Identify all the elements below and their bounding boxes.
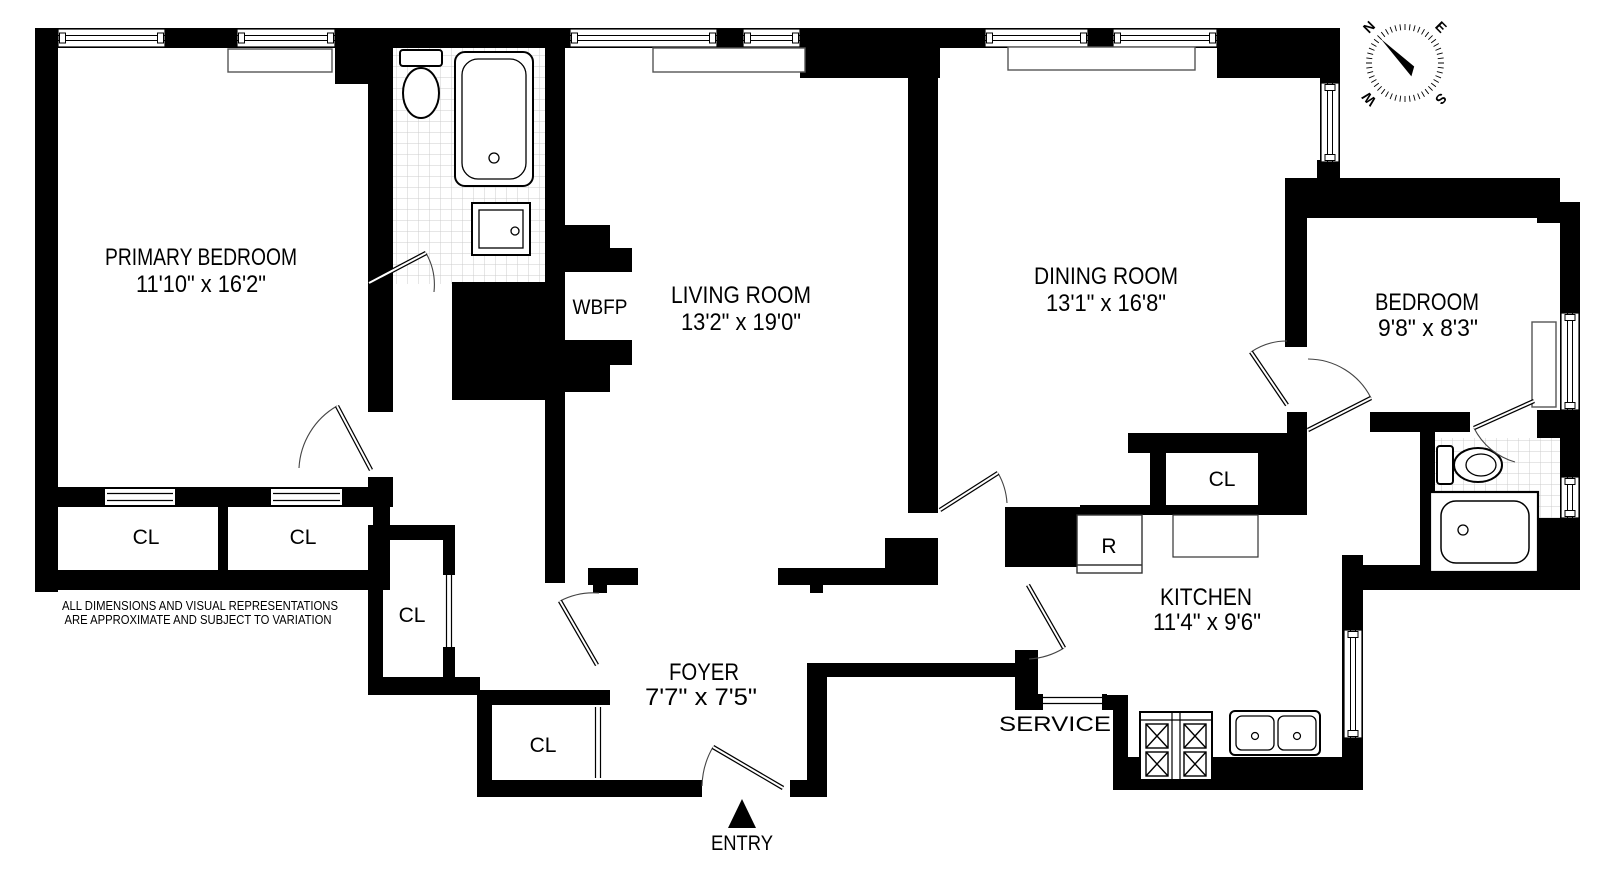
radiator-icon [1008,47,1195,70]
counter [1173,515,1258,557]
room-dims-kitchen: 11'4" x 9'6" [1153,609,1261,636]
radiator-icon [228,49,332,72]
closet-label: CL [399,604,426,627]
wbfp-label: WBFP [573,296,628,319]
radiator-icon [1532,322,1556,407]
closet-door-icon [1102,694,1107,710]
sink-icon [472,203,530,255]
window-icon [570,29,717,47]
room-label-bedroom: BEDROOM [1375,289,1479,316]
refrigerator-label: R [1101,535,1116,558]
window-icon [1113,29,1217,47]
room-dims-primary-bedroom: 11'10" x 16'2" [136,271,266,298]
window-icon [985,29,1088,47]
toilet-icon [400,50,442,118]
stove-icon [1140,712,1212,780]
window-icon [1561,313,1579,410]
window-icon [1344,630,1362,738]
radiator-icon [653,48,805,72]
room-label-kitchen: KITCHEN [1160,584,1252,611]
service-label: SERVICE [999,713,1111,736]
bathtub-icon [1430,492,1538,572]
room-label-foyer: FOYER [669,659,739,686]
closet-label: CL [133,526,160,549]
window-icon [1561,477,1579,518]
window-icon [237,29,335,47]
room-dims-bedroom: 9'8" x 8'3" [1378,315,1478,342]
room-dims-dining-room: 13'1" x 16'8" [1046,290,1166,317]
window-icon [1321,83,1339,162]
disclaimer-line1: ALL DIMENSIONS AND VISUAL REPRESENTATION… [62,599,338,613]
closet-door-icon [105,489,175,505]
kitchen-sink-icon [1230,711,1320,755]
room-dims-foyer: 7'7" x 7'5" [645,684,757,711]
closet-door-icon [271,489,342,505]
window-icon [743,29,800,47]
toilet-icon [1437,446,1502,484]
room-label-primary-bedroom: PRIMARY BEDROOM [105,244,297,271]
closet-label: CL [1209,468,1236,491]
closet-label: CL [290,526,317,549]
room-label-dining-room: DINING ROOM [1034,263,1178,290]
disclaimer-line2: ARE APPROXIMATE AND SUBJECT TO VARIATION [65,613,332,627]
room-label-living-room: LIVING ROOM [671,282,811,309]
floorplan-canvas: N E S W PRIMARY BEDROOM 11'10" x 16'2" L… [0,0,1600,879]
room-dims-living-room: 13'2" x 19'0" [681,309,801,336]
entry-label: ENTRY [711,832,773,855]
closet-label: CL [530,734,557,757]
bathtub-icon [455,52,533,186]
window-icon [58,29,165,47]
